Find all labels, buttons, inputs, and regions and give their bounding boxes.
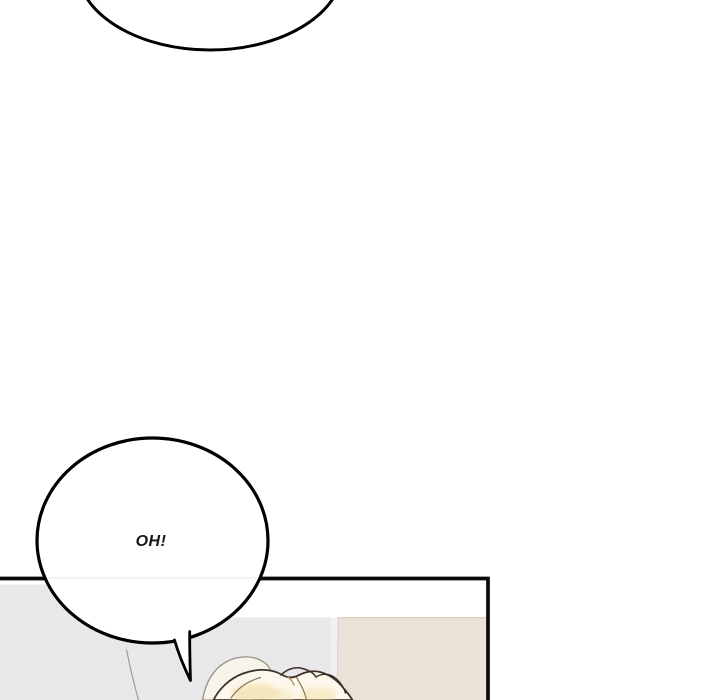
speech-bubble-top-partial (77, 0, 343, 50)
speech-bubble-oh-text: OH! (136, 533, 167, 551)
panel-wall-beige (338, 617, 487, 700)
webtoon-page: OH! (0, 0, 720, 700)
comic-artwork (0, 0, 720, 700)
